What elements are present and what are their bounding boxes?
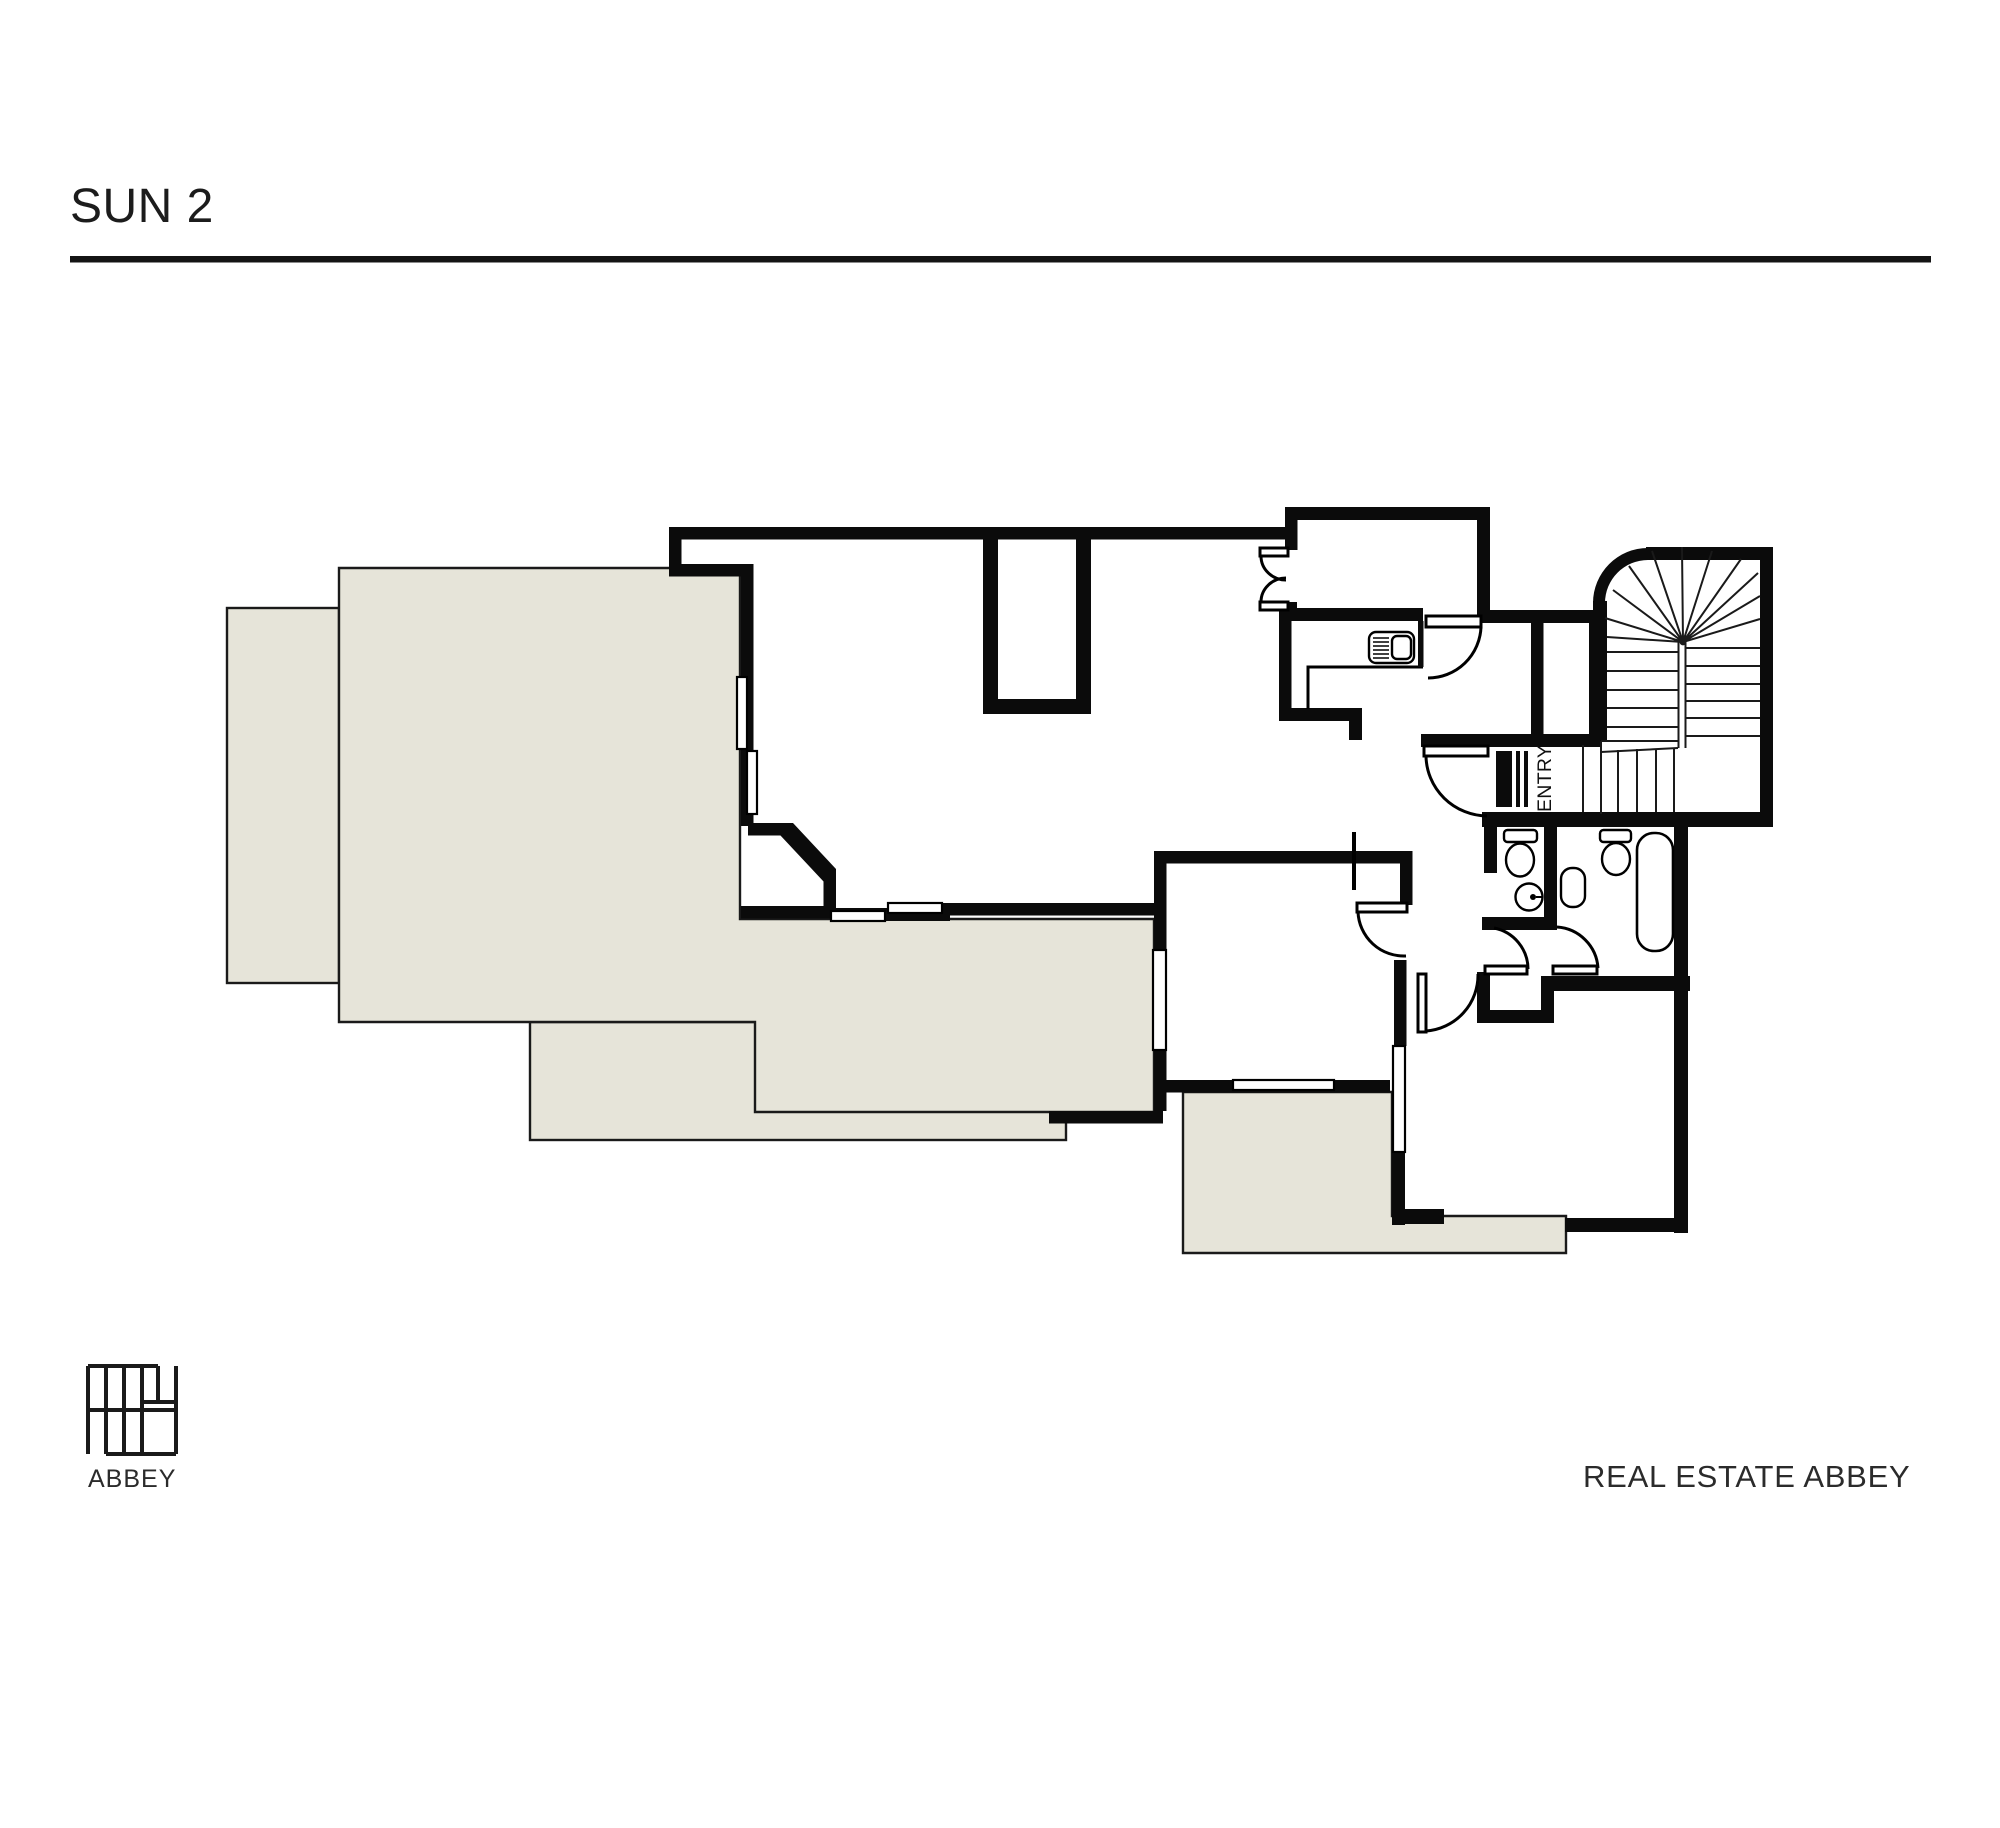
svg-text:REAL ESTATE ABBEY: REAL ESTATE ABBEY [1583,1459,1910,1494]
svg-text:ENTRY: ENTRY [1534,745,1556,812]
svg-text:ABBEY: ABBEY [88,1465,176,1493]
svg-text:SUN 2: SUN 2 [70,180,214,233]
